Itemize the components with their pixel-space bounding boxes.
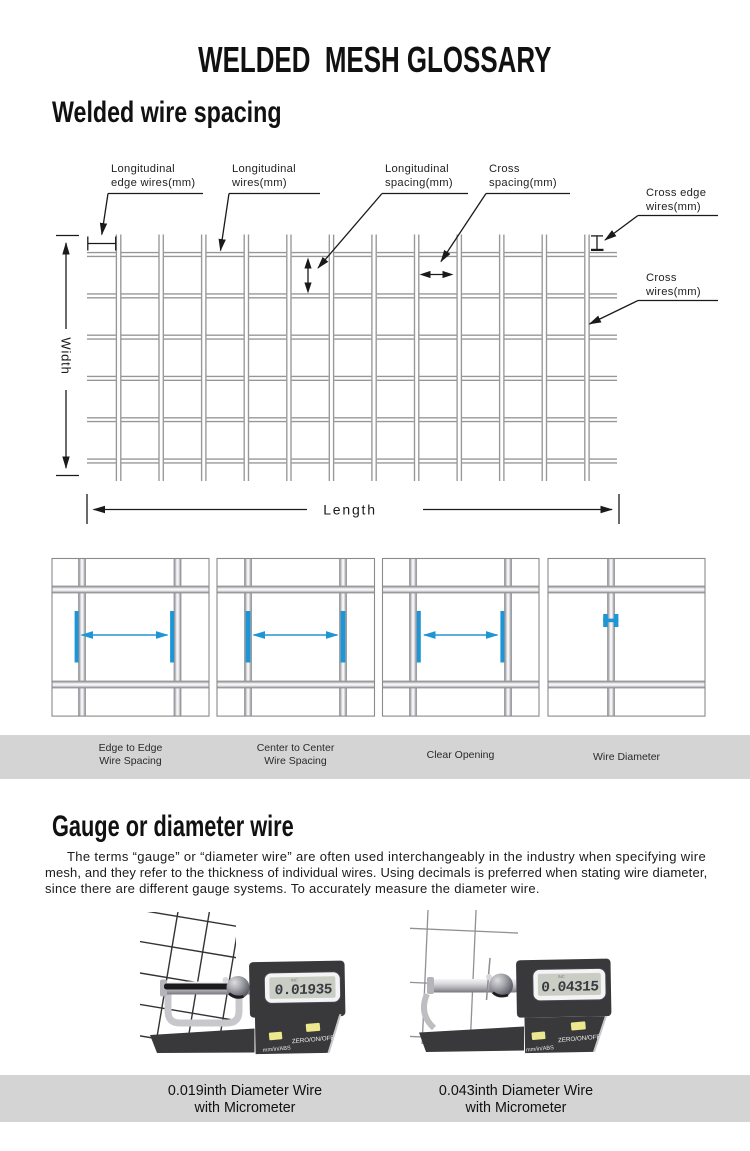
svg-text:edge wires(mm): edge wires(mm) [111, 177, 195, 189]
svg-text:Width: Width [59, 337, 74, 374]
svg-text:spacing(mm): spacing(mm) [489, 177, 557, 189]
svg-text:Longitudinal: Longitudinal [232, 163, 296, 175]
svg-text:INC: INC [291, 977, 298, 982]
svg-text:0.01935: 0.01935 [274, 982, 332, 999]
svg-text:Cross: Cross [489, 163, 520, 175]
svg-text:Longitudinal: Longitudinal [111, 163, 175, 175]
svg-text:INC: INC [558, 974, 565, 979]
svg-text:wires(mm): wires(mm) [645, 201, 701, 213]
svg-text:Length: Length [323, 502, 377, 518]
svg-text:0.04315: 0.04315 [541, 979, 599, 996]
svg-text:wires(mm): wires(mm) [645, 286, 701, 298]
svg-text:Cross edge: Cross edge [646, 187, 706, 199]
svg-text:Longitudinal: Longitudinal [385, 163, 449, 175]
svg-text:spacing(mm): spacing(mm) [385, 177, 453, 189]
svg-text:wires(mm): wires(mm) [231, 177, 287, 189]
svg-text:Cross: Cross [646, 272, 677, 284]
